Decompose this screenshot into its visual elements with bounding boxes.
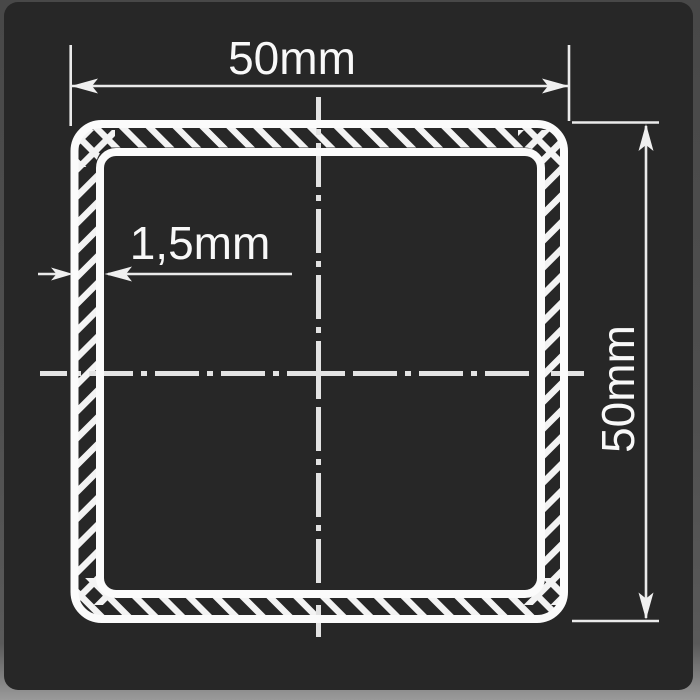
width-dimension-label: 50mm: [228, 32, 356, 84]
wall-hatch-left: [60, 130, 115, 605]
tube-cross-section-drawing: 50mm 1,5mm 50mm: [0, 0, 700, 700]
centerlines: [40, 97, 584, 637]
height-dimension-label: 50mm: [592, 325, 644, 453]
thickness-dimension-label: 1,5mm: [130, 217, 271, 269]
